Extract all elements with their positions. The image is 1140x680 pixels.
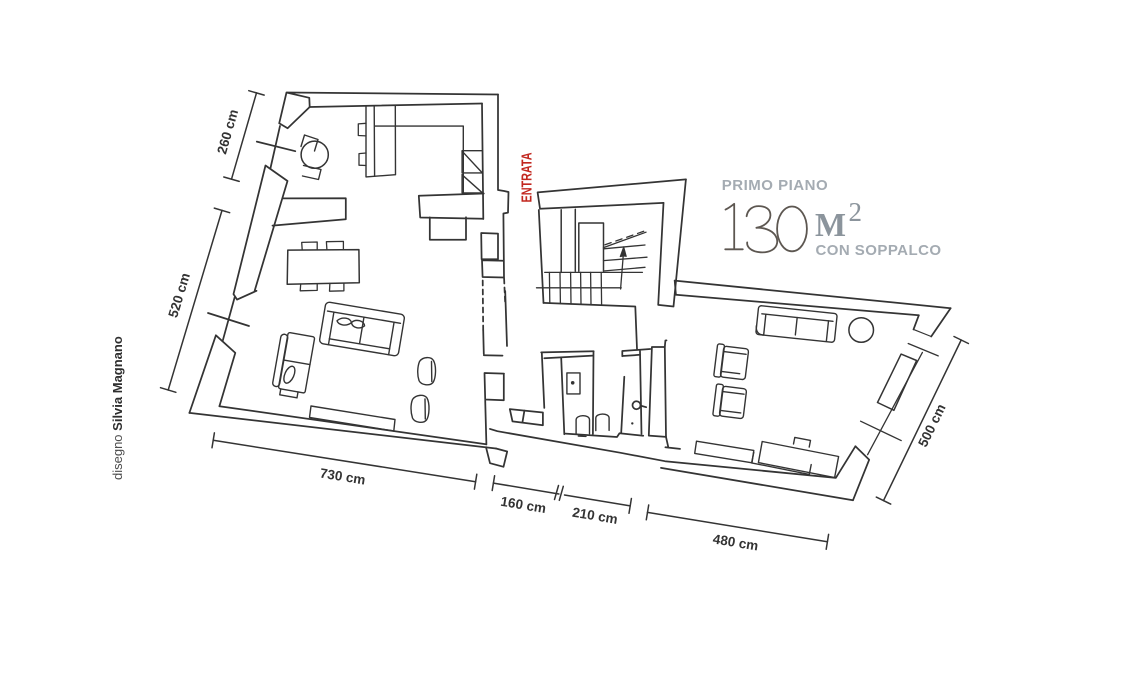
svg-text:disegno Silvia Magnano: disegno Silvia Magnano [110, 336, 125, 480]
svg-text:260 cm: 260 cm [214, 108, 241, 156]
svg-text:160 cm: 160 cm [500, 494, 548, 516]
svg-text:M: M [815, 207, 846, 244]
svg-text:480 cm: 480 cm [712, 531, 760, 553]
svg-text:CON SOPPALCO: CON SOPPALCO [816, 242, 942, 259]
svg-text:2: 2 [849, 197, 863, 227]
svg-text:210 cm: 210 cm [571, 505, 619, 527]
svg-text:730 cm: 730 cm [319, 466, 367, 488]
svg-text:520 cm: 520 cm [165, 271, 193, 319]
svg-text:PRIMO PIANO: PRIMO PIANO [722, 177, 828, 194]
svg-text:ENTRATA: ENTRATA [520, 152, 536, 202]
